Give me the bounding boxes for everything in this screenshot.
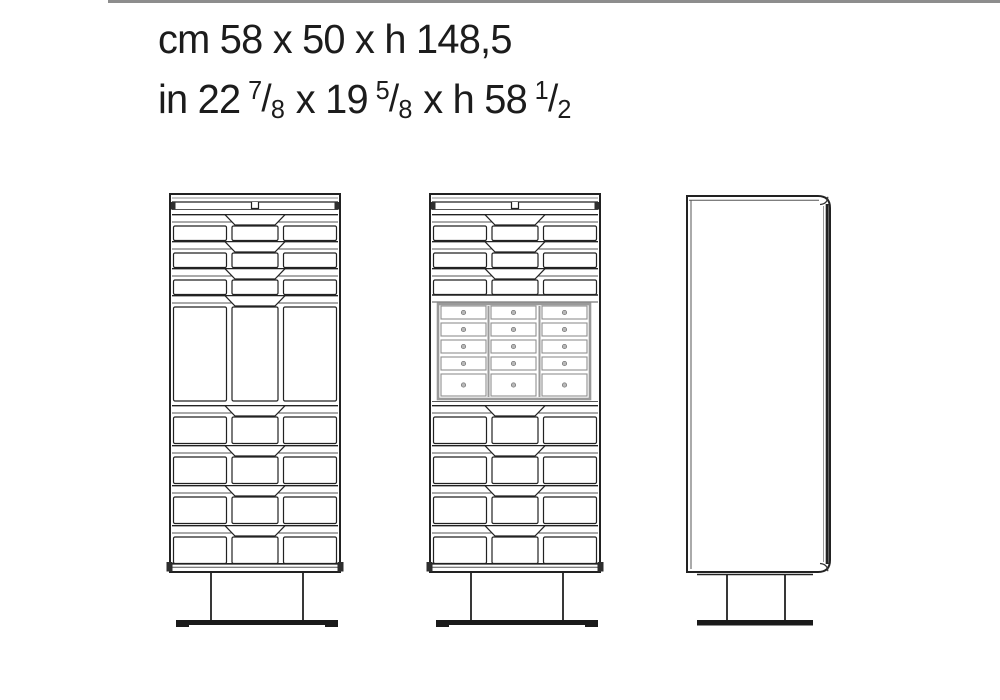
pedestal-stand (697, 574, 813, 626)
dimensions-label: cm 58 x 50 x h 148,5 in 227/8x 195/8x h … (158, 14, 585, 135)
dimensions-in-line: in 227/8x 195/8x h 581/2 (158, 65, 573, 135)
in-sep2: x h 58 (423, 76, 527, 122)
grid-drawer-cell (441, 323, 486, 336)
tall-door-left (174, 307, 227, 401)
in-sep1: x 19 (296, 76, 368, 122)
pedestal-stand (176, 573, 338, 627)
fraction-1-2: 1/2 (535, 76, 571, 122)
grid-drawer-cell (441, 340, 486, 353)
fraction-7-8: 7/8 (248, 76, 284, 122)
grid-drawer-cell (542, 323, 587, 336)
grid-drawer-cell (491, 357, 536, 370)
dimensions-cm-line: cm 58 x 50 x h 148,5 (158, 14, 573, 65)
grid-drawer-cell (491, 340, 536, 353)
small-drawer-grid (441, 306, 587, 396)
tall-door-section (172, 296, 338, 401)
top-drawer-groups (172, 215, 338, 295)
grid-drawer-cell (441, 374, 486, 396)
side-view-drawing (679, 193, 839, 633)
grid-drawer-cell (491, 323, 536, 336)
front-view-open-drawing (425, 193, 605, 633)
tall-door-right (284, 307, 337, 401)
page-top-rule (108, 0, 1000, 3)
page: cm 58 x 50 x h 148,5 in 227/8x 195/8x h … (0, 0, 1000, 700)
pedestal-stand (436, 573, 598, 627)
grid-drawer-cell (542, 306, 587, 319)
side-panel (687, 196, 830, 572)
grid-drawer-cell (491, 374, 536, 396)
in-prefix: in 22 (158, 76, 240, 122)
grid-drawer-cell (542, 374, 587, 396)
top-drawer-groups (432, 215, 598, 295)
grid-drawer-cell (441, 306, 486, 319)
open-compartment (432, 295, 598, 402)
fraction-5-8: 5/8 (376, 76, 412, 122)
handle-cutout (225, 296, 285, 306)
grid-drawer-cell (441, 357, 486, 370)
grid-drawer-cell (542, 357, 587, 370)
front-view-closed-drawing (165, 193, 345, 633)
tall-door-centre (232, 307, 278, 401)
grid-drawer-cell (491, 306, 536, 319)
grid-drawer-cell (542, 340, 587, 353)
